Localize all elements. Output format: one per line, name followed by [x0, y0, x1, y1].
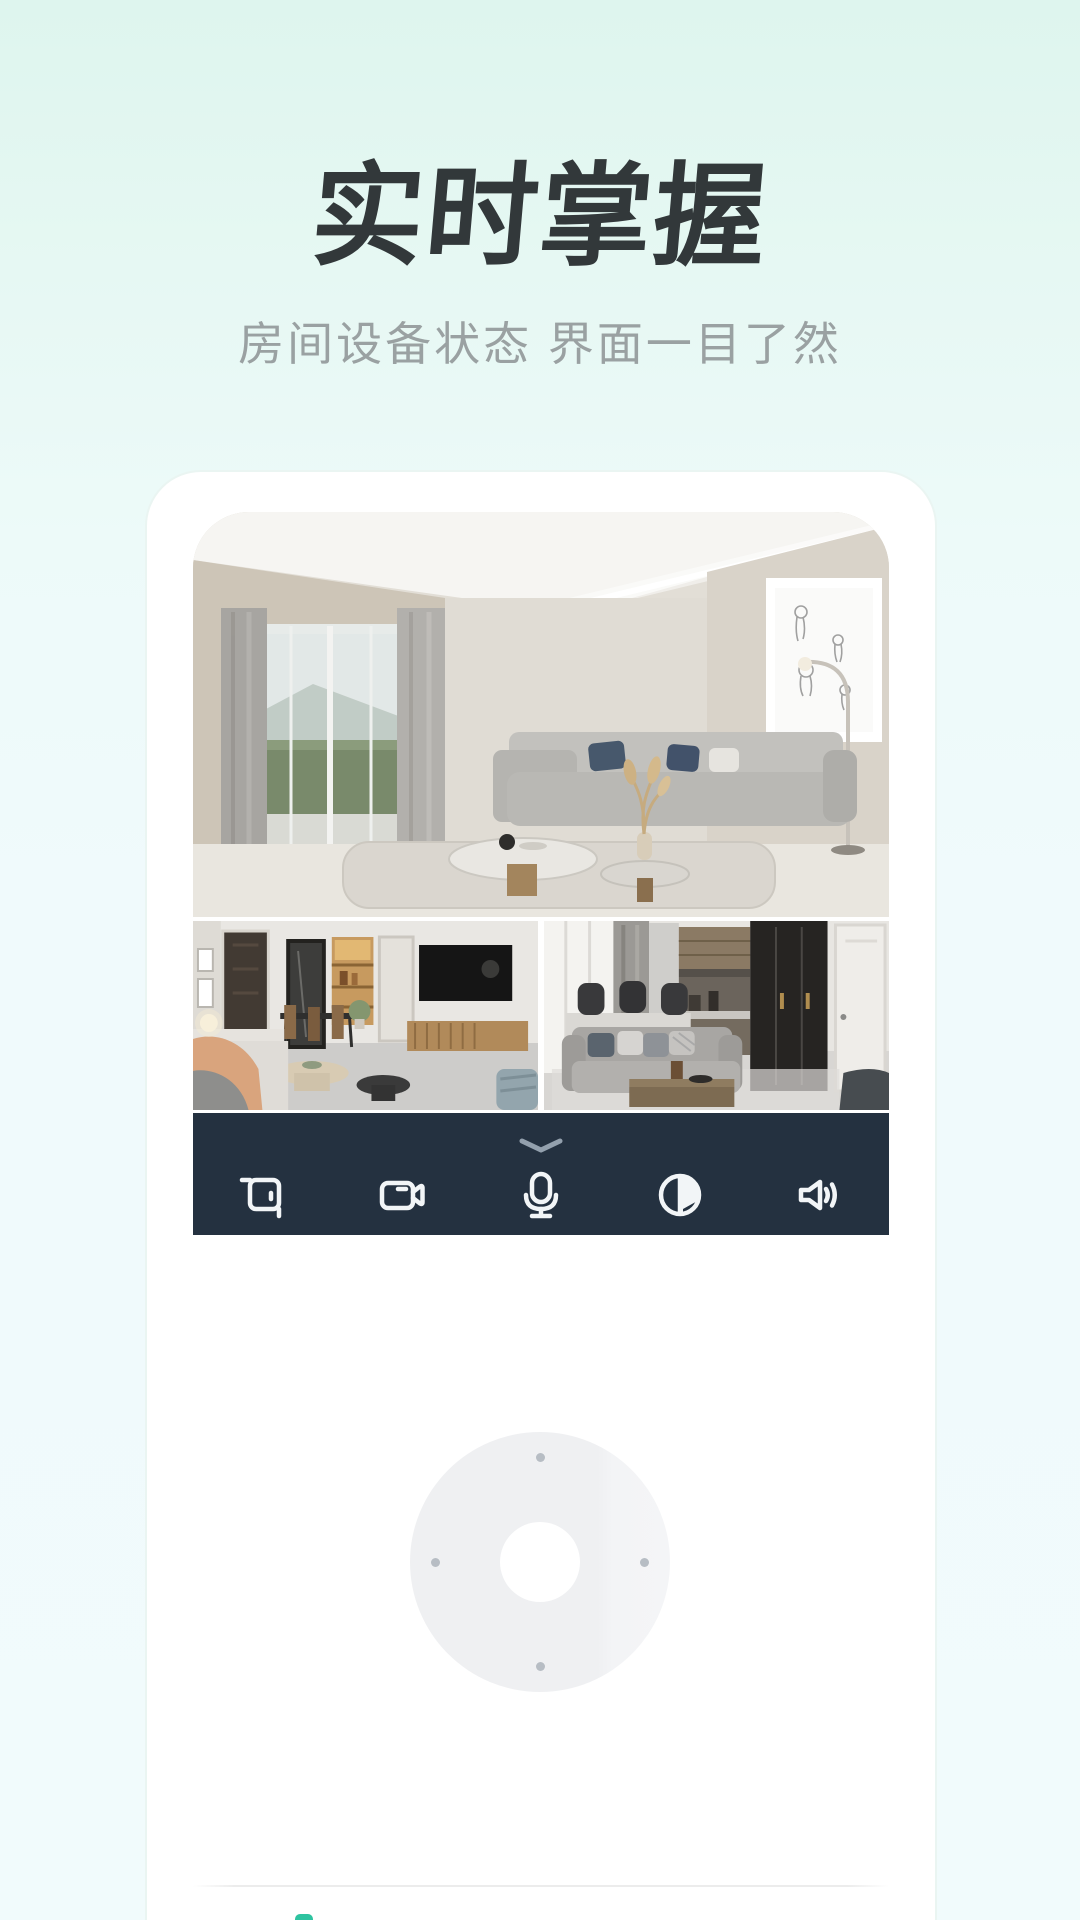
phone-mockup [145, 470, 937, 1920]
dining-room-illustration [193, 921, 538, 1110]
hero-section: 实时掌握 房间设备状态 界面一目了然 [0, 158, 1080, 370]
camera-feed-thumb-dining[interactable] [193, 921, 538, 1110]
marketing-screen: 实时掌握 房间设备状态 界面一目了然 [0, 0, 1080, 1920]
video-record-button[interactable] [378, 1171, 426, 1219]
lounge-illustration [544, 921, 889, 1110]
dpad-center [500, 1522, 580, 1602]
section-divider [193, 1885, 889, 1887]
crop-icon [239, 1171, 287, 1219]
next-section-accent-mark [295, 1914, 313, 1920]
speaker-icon [795, 1171, 843, 1219]
camera-control-bar [193, 1113, 889, 1235]
chevron-down-icon[interactable] [519, 1138, 563, 1154]
dpad-direction-up[interactable] [536, 1453, 545, 1462]
living-room-illustration [193, 512, 889, 917]
crop-screenshot-button[interactable] [239, 1171, 287, 1219]
contrast-theme-button[interactable] [656, 1171, 704, 1219]
control-icons-row [193, 1171, 889, 1219]
ptz-dpad[interactable] [410, 1432, 670, 1692]
microphone-icon [517, 1171, 565, 1219]
ptz-panel [193, 1235, 889, 1798]
camera-feed-thumb-lounge[interactable] [544, 921, 889, 1110]
dpad-direction-down[interactable] [536, 1662, 545, 1671]
dpad-direction-right[interactable] [640, 1558, 649, 1567]
video-camera-icon [378, 1171, 426, 1219]
dpad-direction-left[interactable] [431, 1558, 440, 1567]
camera-feed-main[interactable] [193, 512, 889, 917]
camera-thumbnails [193, 921, 889, 1110]
contrast-icon [656, 1171, 704, 1219]
microphone-button[interactable] [517, 1171, 565, 1219]
page-subtitle: 房间设备状态 界面一目了然 [0, 318, 1080, 370]
volume-button[interactable] [795, 1171, 843, 1219]
page-title: 实时掌握 [0, 158, 1080, 276]
